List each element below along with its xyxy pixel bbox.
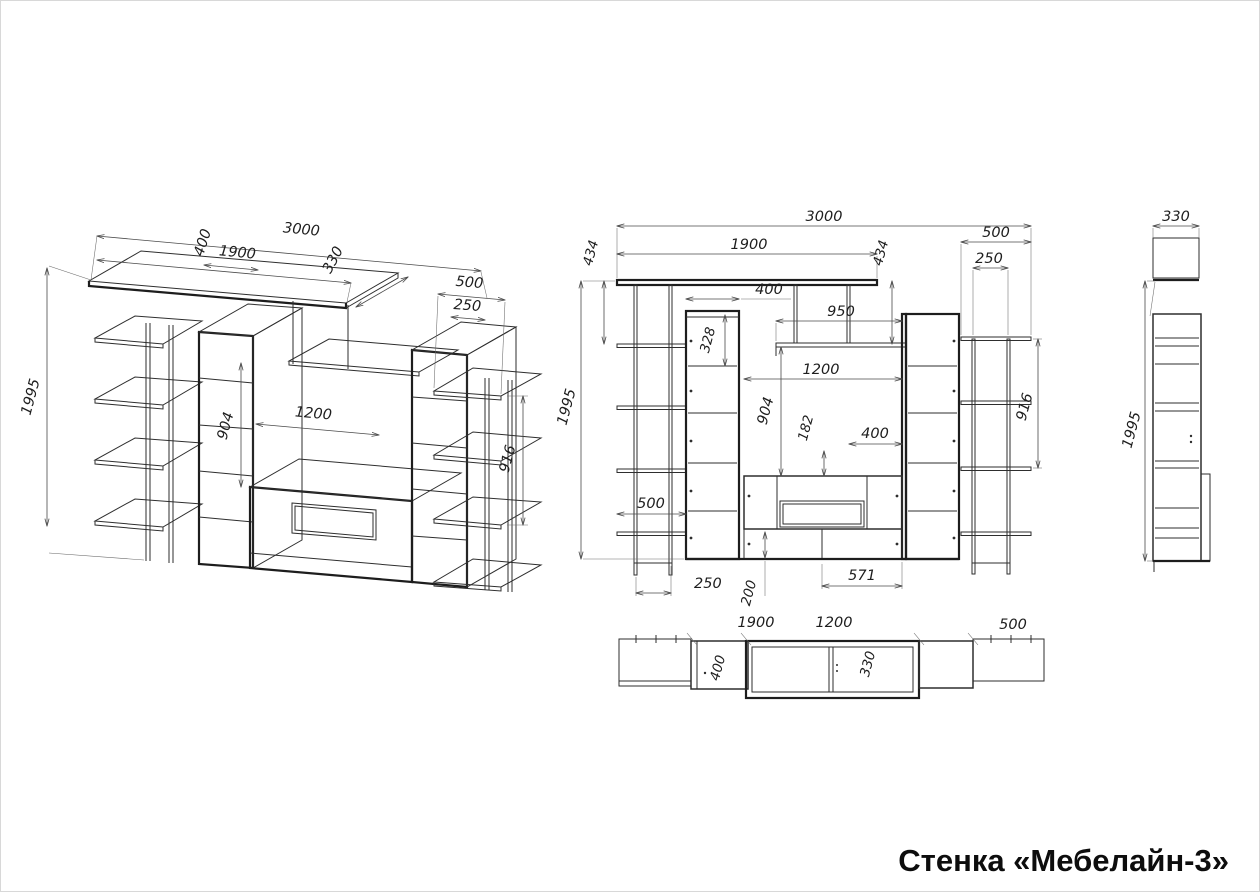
dim-front-400-tv: 400 <box>861 426 889 442</box>
dim-front-904: 904 <box>755 396 778 427</box>
dim-front-1900: 1900 <box>731 237 768 253</box>
dim-front-571: 571 <box>848 568 876 584</box>
dim-front-500-top: 500 <box>982 225 1010 241</box>
side-drawing-lines <box>1150 238 1210 572</box>
dim-plan-1200: 1200 <box>816 615 853 631</box>
blueprint-page: 1995 3000 1900 400 330 500 250 904 1200 <box>0 0 1260 892</box>
front-view: 3000 1900 434 434 500 250 400 950 328 12… <box>559 196 1099 616</box>
dim-iso-1995: 1995 <box>19 377 44 417</box>
dim-side-330: 330 <box>1162 209 1190 225</box>
dim-front-328: 328 <box>697 325 719 354</box>
dim-front-182: 182 <box>795 413 817 442</box>
dim-iso-400: 400 <box>191 227 215 258</box>
isometric-view: 1995 3000 1900 400 330 500 250 904 1200 <box>11 206 556 606</box>
dim-iso-3000: 3000 <box>282 220 320 239</box>
dim-front-950: 950 <box>827 304 855 320</box>
side-view: 330 1995 <box>1121 196 1260 606</box>
drawing-title: Стенка «Мебелайн-3» <box>898 843 1229 879</box>
dim-iso-904: 904 <box>215 411 238 442</box>
front-dimensions: 3000 1900 434 434 500 250 400 950 328 12… <box>555 209 1042 607</box>
dim-side-1995: 1995 <box>1120 410 1145 450</box>
dim-front-200: 200 <box>738 578 760 607</box>
dim-front-1200: 1200 <box>803 362 840 378</box>
dim-front-250-bottom: 250 <box>694 576 722 592</box>
dim-iso-500: 500 <box>455 274 484 292</box>
dim-iso-330: 330 <box>320 244 347 276</box>
dim-front-434-right: 434 <box>870 238 892 267</box>
dim-iso-1200: 1200 <box>294 404 332 423</box>
dim-front-250-top: 250 <box>975 251 1003 267</box>
plan-dimensions: 1900 1200 500 400 330 <box>707 615 1027 682</box>
plan-drawing-lines <box>619 633 1044 698</box>
front-drawing-lines <box>617 280 1031 575</box>
dim-iso-250: 250 <box>453 297 482 315</box>
dim-plan-500: 500 <box>999 617 1027 633</box>
dim-front-3000: 3000 <box>806 209 843 225</box>
dim-front-434-left: 434 <box>580 238 602 267</box>
dim-front-1995: 1995 <box>555 387 580 427</box>
dim-plan-400: 400 <box>707 653 729 682</box>
dim-iso-1900: 1900 <box>218 243 256 262</box>
dim-plan-1900: 1900 <box>738 615 775 631</box>
dim-front-500-shelf: 500 <box>637 496 665 512</box>
plan-view: 1900 1200 500 400 330 <box>601 611 1071 721</box>
dim-front-916: 916 <box>1014 392 1037 423</box>
dim-plan-330: 330 <box>857 649 879 678</box>
dim-front-400-cabinet: 400 <box>755 282 783 298</box>
